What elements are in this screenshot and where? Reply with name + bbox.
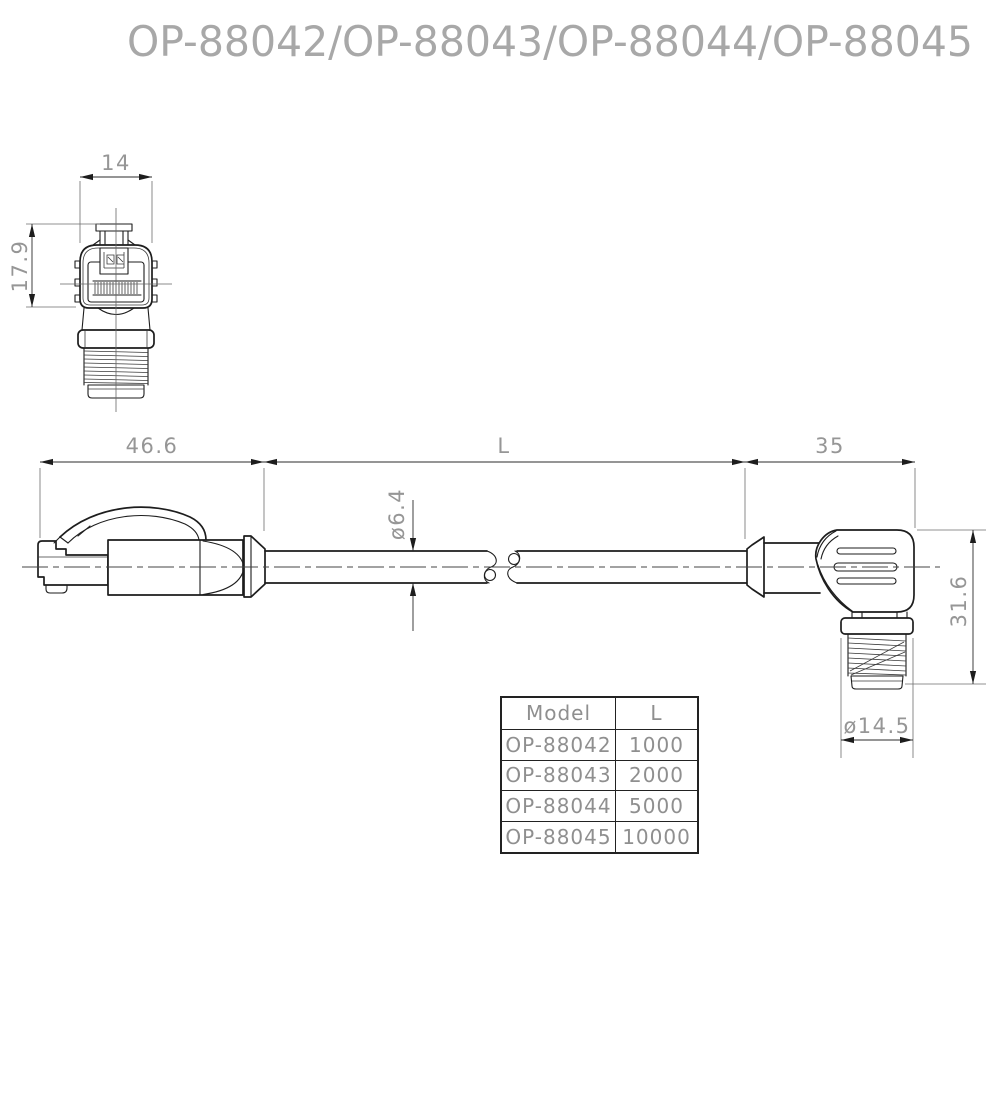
dimension-connector-height: 31.6 (905, 530, 986, 684)
table-cell-length: 10000 (615, 821, 697, 852)
dim-label-connector-height: 31.6 (947, 575, 971, 628)
table-cell-length: 1000 (615, 729, 697, 760)
dimension-cable-diameter: ø6.4 (385, 488, 416, 631)
drawing-canvas: OP-88042/OP-88043/OP-88044/OP-88045 (0, 0, 1000, 1100)
dim-label-cable-length: L (497, 434, 510, 458)
table-cell-model: OP-88044 (502, 790, 615, 821)
rj45-connector-side (38, 507, 265, 597)
table-header-length: L (615, 698, 697, 729)
dim-label-thread-diameter: ø14.5 (843, 714, 910, 738)
m12-right-angle-connector (747, 530, 914, 689)
dim-label-height: 17.9 (8, 240, 32, 293)
table-cell-length: 2000 (615, 760, 697, 791)
dim-label-cable-diameter: ø6.4 (385, 488, 409, 540)
table-cell-model: OP-88045 (502, 821, 615, 852)
model-table: Model L OP-88042 1000 OP-88043 2000 OP-8… (500, 696, 699, 854)
front-view: 14 17.9 (8, 151, 172, 412)
front-view-centerlines (60, 208, 172, 412)
technical-drawing-page: OP-88042/OP-88043/OP-88044/OP-88045 (0, 0, 1000, 1100)
dim-label-width: 14 (101, 151, 131, 175)
dim-label-right-connector: 35 (815, 434, 845, 458)
table-header-model: Model (502, 698, 615, 729)
dim-label-left-connector: 46.6 (126, 434, 179, 458)
table-cell-model: OP-88042 (502, 729, 615, 760)
table-cell-length: 5000 (615, 790, 697, 821)
table-cell-model: OP-88043 (502, 760, 615, 791)
drawing-title: OP-88042/OP-88043/OP-88044/OP-88045 (127, 17, 973, 66)
dimension-lengths: 46.6 L 35 (40, 434, 915, 539)
